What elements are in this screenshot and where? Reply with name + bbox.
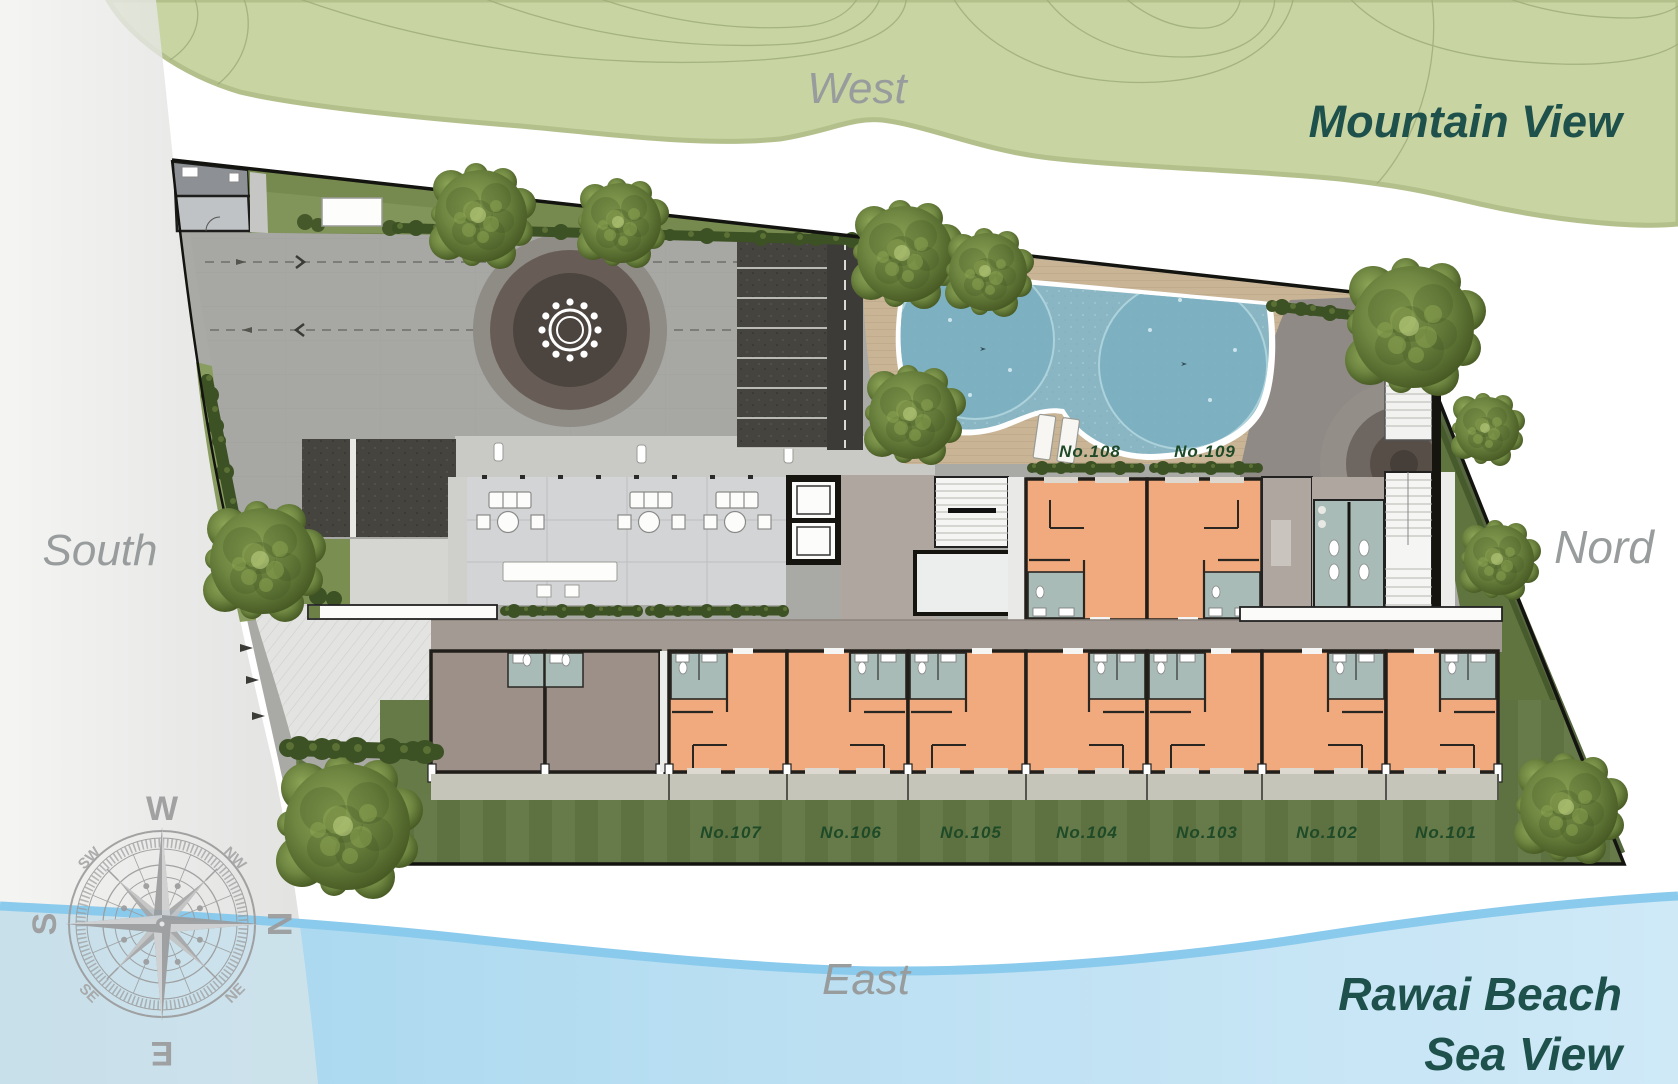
svg-text:South: South [43,526,158,575]
svg-text:Nord: Nord [1554,521,1655,573]
svg-text:Rawai Beach: Rawai Beach [1338,968,1622,1020]
svg-text:No.105: No.105 [940,823,1002,842]
svg-text:No.102: No.102 [1296,823,1358,842]
svg-text:S: S [26,913,64,936]
svg-text:East: East [822,955,912,1004]
svg-text:West: West [807,64,908,113]
svg-text:No.107: No.107 [700,823,762,842]
svg-text:N: N [260,912,298,937]
svg-text:No.103: No.103 [1176,823,1238,842]
svg-text:No.106: No.106 [820,823,882,842]
svg-text:E: E [151,1034,174,1072]
svg-text:No.109: No.109 [1174,442,1236,461]
svg-text:No.108: No.108 [1059,442,1121,461]
svg-text:Mountain View: Mountain View [1309,96,1625,147]
svg-text:Sea View: Sea View [1424,1028,1625,1080]
svg-text:No.101: No.101 [1415,823,1477,842]
svg-text:No.104: No.104 [1056,823,1118,842]
svg-text:W: W [146,790,179,828]
